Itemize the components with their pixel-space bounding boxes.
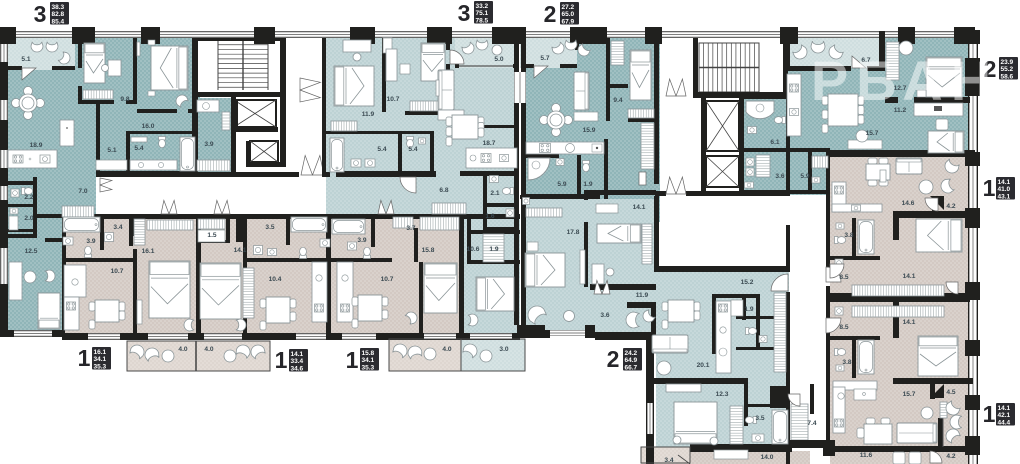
svg-text:55.2: 55.2 (1001, 66, 1014, 73)
svg-text:64.9: 64.9 (625, 357, 638, 364)
svg-text:5.9: 5.9 (557, 181, 566, 188)
svg-text:3.8: 3.8 (844, 232, 853, 239)
svg-text:15.2: 15.2 (741, 279, 754, 286)
svg-text:1: 1 (983, 401, 996, 427)
svg-text:5.4: 5.4 (408, 146, 417, 153)
svg-text:24.2: 24.2 (625, 350, 638, 357)
svg-text:3: 3 (458, 0, 471, 26)
svg-text:15.7: 15.7 (903, 391, 916, 398)
svg-text:38.3: 38.3 (52, 4, 65, 11)
svg-text:3.4: 3.4 (113, 224, 122, 231)
svg-text:18.9: 18.9 (30, 142, 43, 149)
svg-text:2.2: 2.2 (24, 194, 33, 201)
svg-text:5.4: 5.4 (134, 145, 143, 152)
svg-text:5.4: 5.4 (377, 146, 386, 153)
svg-text:3: 3 (34, 1, 47, 27)
svg-text:2: 2 (544, 1, 557, 27)
svg-text:23.9: 23.9 (1001, 59, 1014, 66)
svg-text:14.1: 14.1 (903, 273, 916, 280)
svg-text:43.1: 43.1 (998, 193, 1011, 200)
svg-text:12.5: 12.5 (25, 248, 38, 255)
svg-text:10.6: 10.6 (467, 246, 480, 253)
svg-text:20.1: 20.1 (697, 362, 710, 369)
svg-text:58.6: 58.6 (1001, 73, 1014, 80)
svg-text:3.9: 3.9 (86, 238, 95, 245)
svg-text:2.1: 2.1 (490, 190, 499, 197)
svg-text:3.6: 3.6 (600, 312, 609, 319)
svg-text:1: 1 (346, 347, 359, 373)
svg-text:42.1: 42.1 (998, 412, 1011, 419)
svg-text:3.4: 3.4 (664, 457, 673, 464)
svg-text:33.2: 33.2 (476, 3, 489, 10)
svg-text:4.0: 4.0 (178, 346, 187, 353)
svg-text:8.5: 8.5 (839, 324, 848, 331)
svg-text:3.0: 3.0 (499, 346, 508, 353)
svg-text:1.9: 1.9 (489, 246, 498, 253)
svg-text:18.7: 18.7 (483, 140, 496, 147)
svg-text:15.8: 15.8 (422, 247, 435, 254)
svg-text:1: 1 (983, 175, 996, 201)
svg-text:6.8: 6.8 (439, 187, 448, 194)
svg-text:75.1: 75.1 (476, 10, 489, 17)
svg-text:15.8: 15.8 (362, 350, 375, 357)
svg-text:34.1: 34.1 (362, 357, 375, 364)
svg-text:66.7: 66.7 (625, 364, 638, 371)
svg-text:3.9: 3.9 (357, 237, 366, 244)
svg-text:14.1: 14.1 (291, 351, 304, 358)
svg-text:65.0: 65.0 (562, 11, 575, 18)
svg-text:3.7: 3.7 (406, 225, 415, 232)
svg-text:9.4: 9.4 (613, 97, 622, 104)
svg-text:82.8: 82.8 (52, 11, 65, 18)
svg-text:4.2: 4.2 (946, 203, 955, 210)
svg-text:16.1: 16.1 (94, 349, 107, 356)
svg-text:27.2: 27.2 (562, 4, 575, 11)
svg-text:14.1: 14.1 (903, 319, 916, 326)
svg-text:85.4: 85.4 (52, 18, 65, 25)
svg-text:34.6: 34.6 (291, 365, 304, 372)
svg-text:44.4: 44.4 (998, 419, 1011, 426)
svg-text:14.1: 14.1 (998, 405, 1011, 412)
svg-text:11.9: 11.9 (362, 111, 375, 118)
svg-text:10.7: 10.7 (381, 276, 394, 283)
svg-text:34.1: 34.1 (94, 356, 107, 363)
svg-text:10.7: 10.7 (111, 268, 124, 275)
svg-text:5.9: 5.9 (800, 173, 809, 180)
svg-text:15.7: 15.7 (866, 130, 879, 137)
svg-text:14.1: 14.1 (633, 204, 646, 211)
svg-text:14.0: 14.0 (761, 454, 774, 461)
svg-text:1: 1 (78, 345, 91, 371)
svg-text:1.9: 1.9 (744, 306, 753, 313)
svg-text:11.9: 11.9 (636, 292, 649, 299)
svg-text:2: 2 (607, 346, 620, 372)
svg-text:1.5: 1.5 (207, 232, 216, 239)
svg-text:14.1: 14.1 (998, 179, 1011, 186)
svg-text:4.2: 4.2 (946, 453, 955, 460)
svg-text:1.9: 1.9 (583, 181, 592, 188)
svg-text:14.6: 14.6 (902, 200, 915, 207)
svg-text:16.0: 16.0 (142, 123, 155, 130)
svg-text:3.8: 3.8 (842, 359, 851, 366)
svg-text:4.0: 4.0 (204, 346, 213, 353)
svg-text:35.3: 35.3 (362, 364, 375, 371)
svg-text:67.9: 67.9 (562, 18, 575, 25)
svg-text:3.5: 3.5 (755, 415, 764, 422)
svg-text:5.0: 5.0 (494, 56, 503, 63)
svg-text:5.1: 5.1 (21, 56, 30, 63)
svg-text:12.3: 12.3 (716, 391, 729, 398)
svg-text:14.1: 14.1 (234, 247, 247, 254)
svg-text:10.7: 10.7 (387, 96, 400, 103)
svg-text:3.9: 3.9 (204, 141, 213, 148)
svg-text:3.5: 3.5 (265, 224, 274, 231)
svg-text:5.7: 5.7 (540, 55, 549, 62)
svg-text:6.1: 6.1 (770, 139, 779, 146)
svg-text:11.6: 11.6 (860, 452, 873, 459)
svg-text:17.8: 17.8 (567, 229, 580, 236)
svg-text:10.4: 10.4 (269, 276, 282, 283)
svg-text:4.5: 4.5 (946, 389, 955, 396)
svg-text:1: 1 (275, 347, 288, 373)
svg-text:15.9: 15.9 (583, 127, 596, 134)
svg-text:35.3: 35.3 (94, 363, 107, 370)
svg-text:41.0: 41.0 (998, 186, 1011, 193)
svg-text:7.4: 7.4 (807, 420, 816, 427)
svg-text:9.8: 9.8 (120, 96, 129, 103)
svg-text:78.5: 78.5 (476, 17, 489, 24)
svg-text:3.6: 3.6 (775, 173, 784, 180)
svg-text:4.0: 4.0 (442, 346, 451, 353)
svg-text:2.0: 2.0 (24, 215, 33, 222)
svg-text:1.6: 1.6 (485, 213, 494, 220)
svg-text:33.4: 33.4 (291, 358, 304, 365)
svg-text:РБАН: РБАН (811, 49, 999, 112)
svg-text:5.1: 5.1 (107, 147, 116, 154)
svg-text:7.0: 7.0 (78, 188, 87, 195)
svg-text:16.1: 16.1 (142, 248, 155, 255)
svg-text:8.5: 8.5 (839, 274, 848, 281)
